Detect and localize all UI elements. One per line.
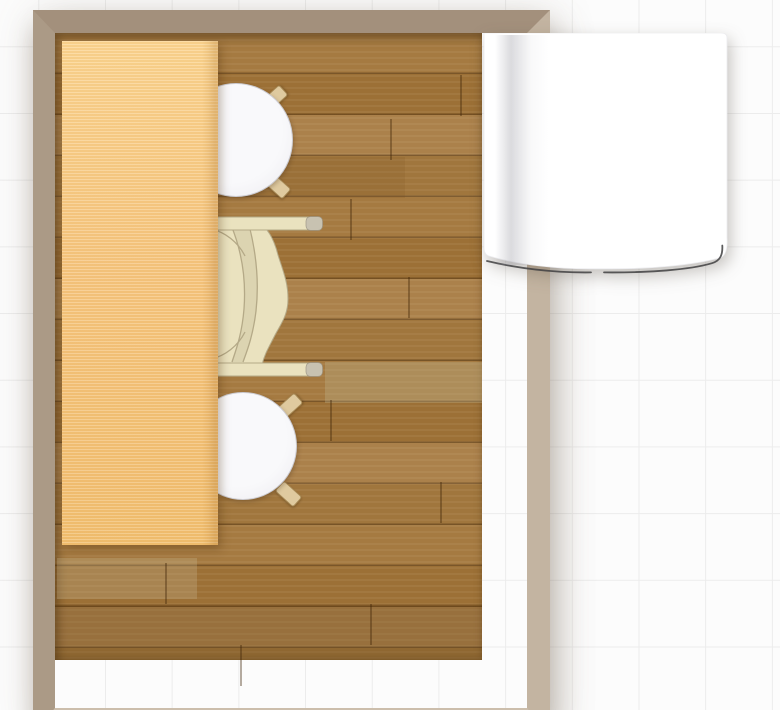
floor-plank-seam xyxy=(350,199,352,240)
floorplan-canvas[interactable] xyxy=(0,0,780,710)
floor-plank-highlight xyxy=(325,362,482,403)
floor-plank-seam xyxy=(370,604,372,645)
cabinet-shape xyxy=(481,33,728,278)
floor-plank-seam xyxy=(330,400,332,441)
floor-plank-seam xyxy=(390,119,392,160)
floor-plank-seam xyxy=(240,645,242,686)
armchair[interactable] xyxy=(205,212,325,380)
floor-plank-seam xyxy=(460,75,462,116)
table-top[interactable] xyxy=(62,41,218,545)
floor-plank-shadow xyxy=(55,604,482,660)
floor-plank-highlight xyxy=(57,558,197,599)
floor-plank-seam xyxy=(165,563,167,604)
floor-plank-seam xyxy=(440,482,442,523)
white-cabinet[interactable] xyxy=(481,33,728,278)
floor-plank-seam xyxy=(408,277,410,318)
